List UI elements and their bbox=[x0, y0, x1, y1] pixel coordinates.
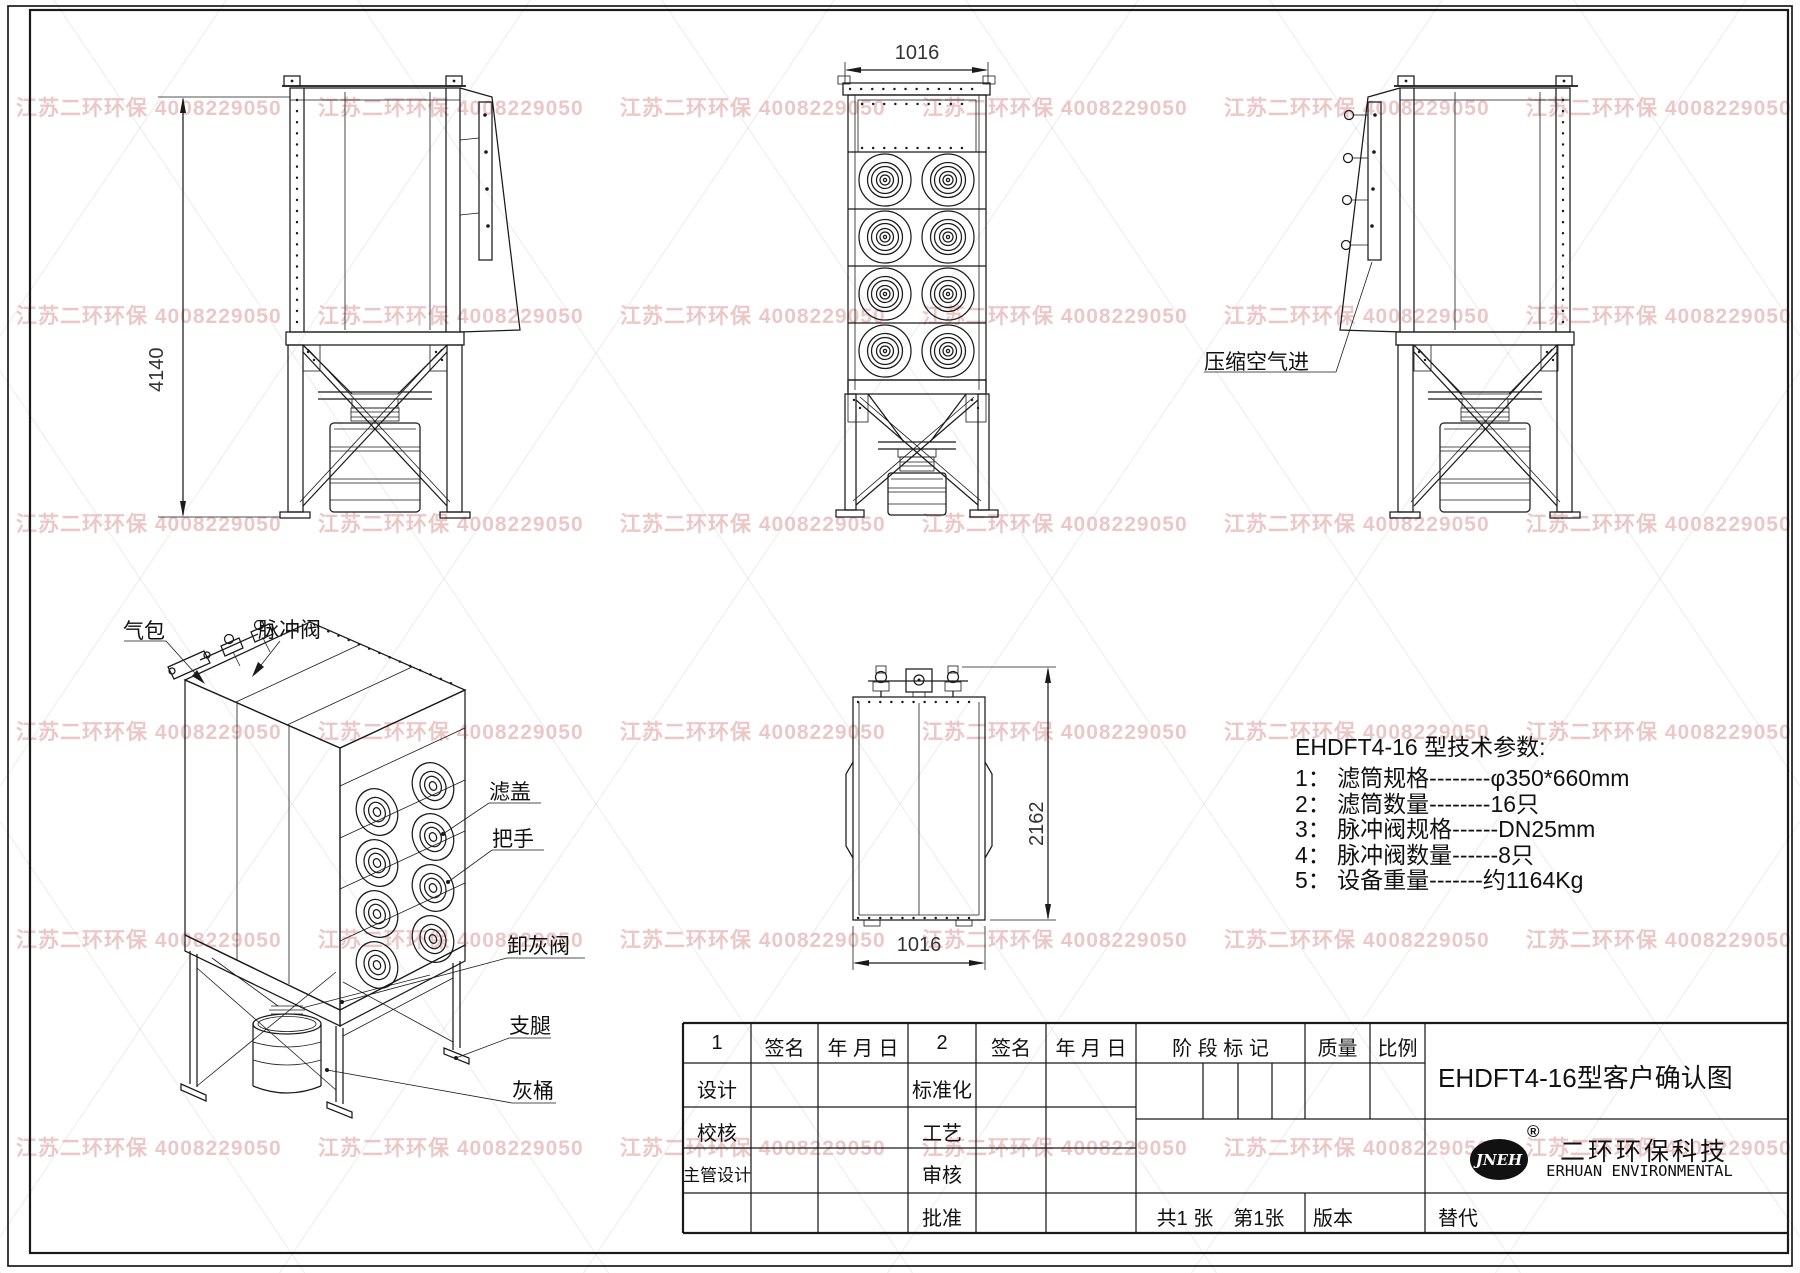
callout-pulse-valve: 脉冲阀 bbox=[258, 614, 321, 644]
tb-sheet-info: 共1 张 第1张 bbox=[1136, 1202, 1305, 1231]
dim-side-height: 4140 bbox=[146, 348, 169, 393]
tb-row-design: 设计 bbox=[683, 1074, 751, 1103]
tb-col1-header: 1 bbox=[683, 1032, 751, 1055]
tb-row-approve: 批准 bbox=[908, 1202, 976, 1231]
tech-param-item: 2： 滤筒数量--------16只 bbox=[1295, 792, 1765, 818]
callout-support-leg: 支腿 bbox=[509, 1010, 551, 1040]
drawing-title: EHDFT4-16型客户确认图 bbox=[1438, 1058, 1733, 1095]
callout-air-inlet: 压缩空气进 bbox=[1204, 346, 1309, 376]
tech-param-item: 5： 设备重量-------约1164Kg bbox=[1295, 868, 1765, 894]
dim-top-width: 1016 bbox=[884, 934, 954, 957]
tb-row-review: 审核 bbox=[908, 1159, 976, 1188]
tb-date1-header: 年 月 日 bbox=[818, 1032, 908, 1061]
tb-sign1-header: 签名 bbox=[751, 1032, 818, 1061]
tb-row-standardize: 标准化 bbox=[908, 1074, 976, 1103]
tb-quality-header: 质量 bbox=[1305, 1032, 1370, 1061]
tech-param-item: 3： 脉冲阀规格------DN25mm bbox=[1295, 817, 1765, 843]
dim-top-depth: 2162 bbox=[1026, 802, 1049, 847]
company-logo-text: JNEH bbox=[1476, 1151, 1522, 1169]
tb-col2-header: 2 bbox=[908, 1032, 976, 1055]
callout-ash-bucket: 灰桶 bbox=[512, 1075, 554, 1105]
callout-air-bag: 气包 bbox=[123, 615, 165, 645]
company-name-en: ERHUAN ENVIRONMENTAL bbox=[1542, 1162, 1737, 1180]
callout-filter-cover: 滤盖 bbox=[489, 776, 531, 806]
tb-row-process: 工艺 bbox=[908, 1117, 976, 1146]
callout-handle: 把手 bbox=[492, 823, 534, 853]
tb-date2-header: 年 月 日 bbox=[1046, 1032, 1136, 1061]
callout-ash-valve: 卸灰阀 bbox=[507, 930, 570, 960]
tb-row-chief-design: 主管设计 bbox=[683, 1161, 751, 1186]
tech-params-title: EHDFT4-16 型技术参数: bbox=[1295, 728, 1765, 762]
dim-front-width: 1016 bbox=[882, 42, 952, 65]
drawing-page: 江苏二环环保 4008229050江苏二环环保 4008229050江苏二环环保… bbox=[0, 0, 1800, 1273]
tech-param-item: 4： 脉冲阀数量------8只 bbox=[1295, 843, 1765, 869]
tech-param-item: 1： 滤筒规格--------φ350*660mm bbox=[1295, 766, 1765, 792]
tech-params-block: EHDFT4-16 型技术参数: 1： 滤筒规格--------φ350*660… bbox=[1295, 728, 1765, 894]
tb-row-check: 校核 bbox=[683, 1117, 751, 1146]
company-logo: JNEH bbox=[1470, 1139, 1528, 1180]
tb-replace-label: 替代 bbox=[1438, 1202, 1478, 1231]
tb-version-label: 版本 bbox=[1313, 1202, 1353, 1231]
tb-stage-header: 阶 段 标 记 bbox=[1136, 1032, 1305, 1061]
tb-sign2-header: 签名 bbox=[976, 1032, 1046, 1061]
registered-trademark-icon: ® bbox=[1527, 1122, 1540, 1142]
tb-scale-header: 比例 bbox=[1370, 1032, 1425, 1061]
